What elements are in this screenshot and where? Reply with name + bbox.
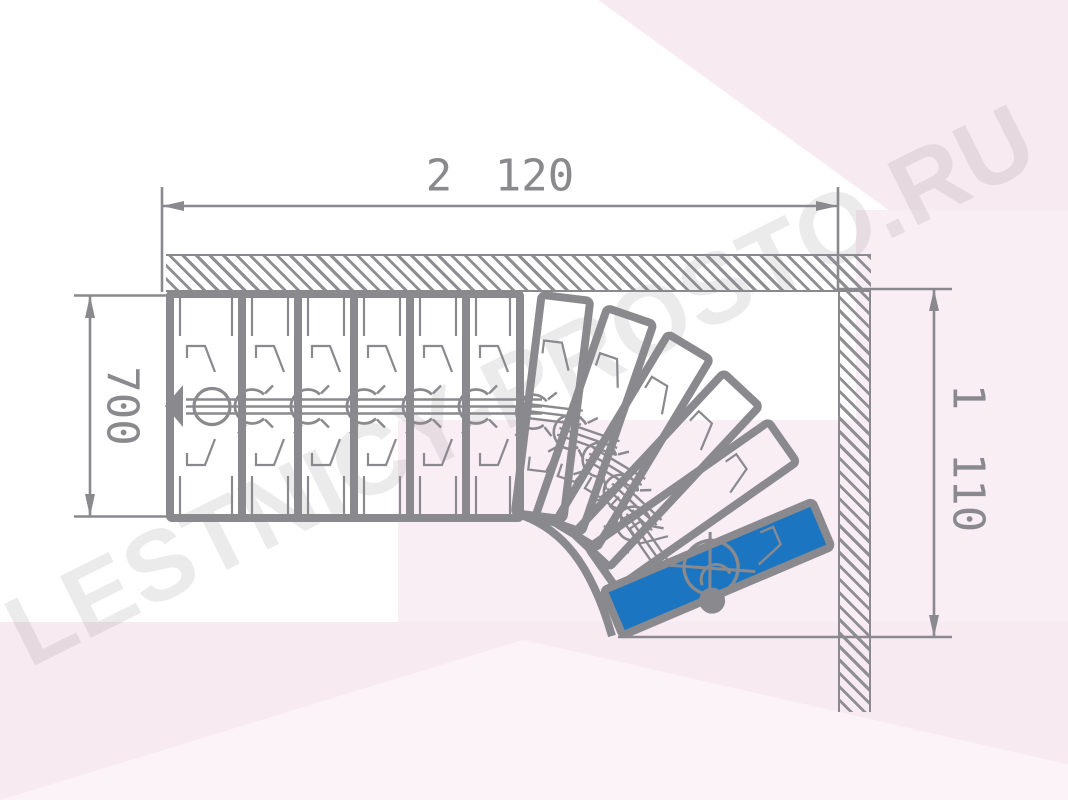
bg-triangle-bottom [0, 622, 1068, 800]
dimension-label-left-height: 700 [97, 366, 148, 445]
straight-flight-outline [166, 290, 524, 522]
wall-right-hatched [838, 292, 871, 712]
bg-band-bottom [0, 622, 1068, 800]
dimension-label-right-height: 1 110 [943, 384, 994, 532]
pivot-dot-icon [695, 583, 729, 617]
dimension-label-top-width: 2 120 [426, 151, 574, 202]
wall-top-hatched [166, 254, 871, 292]
